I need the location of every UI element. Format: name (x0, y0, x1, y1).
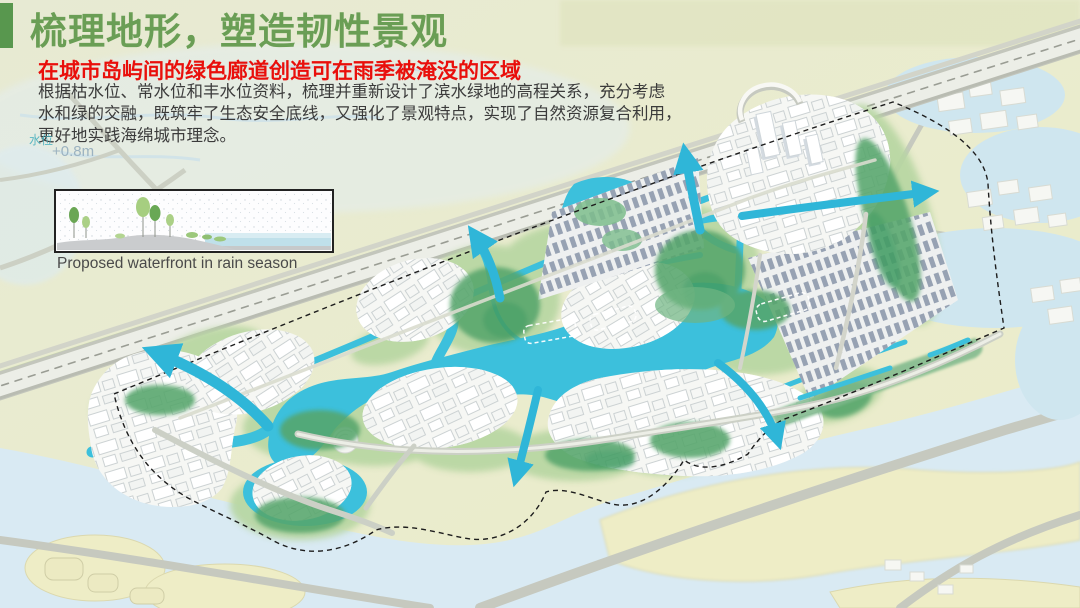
map-label-elevation: +0.8m (52, 143, 94, 160)
inset-section-diagram (55, 190, 333, 252)
body-paragraph: 根据枯水位、常水位和丰水位资料，梳理并重新设计了滨水绿地的高程关系，充分考虑 水… (38, 81, 682, 147)
body-line-3: 更好地实践海绵城市理念。 (38, 125, 682, 147)
body-line-1: 根据枯水位、常水位和丰水位资料，梳理并重新设计了滨水绿地的高程关系，充分考虑 (38, 81, 682, 103)
map-label-water-level: 水位 (29, 131, 53, 148)
slide: 梳理地形，塑造韧性景观 在城市岛屿间的绿色廊道创造可在雨季被淹没的区域 根据枯水… (0, 0, 1080, 608)
inset-caption: Proposed waterfront in rain season (57, 255, 297, 273)
page-title: 梳理地形，塑造韧性景观 (30, 1, 448, 55)
title-accent-bar (0, 3, 13, 48)
body-line-2: 水和绿的交融，既筑牢了生态安全底线，又强化了景观特点，实现了自然资源复合利用， (38, 103, 682, 125)
